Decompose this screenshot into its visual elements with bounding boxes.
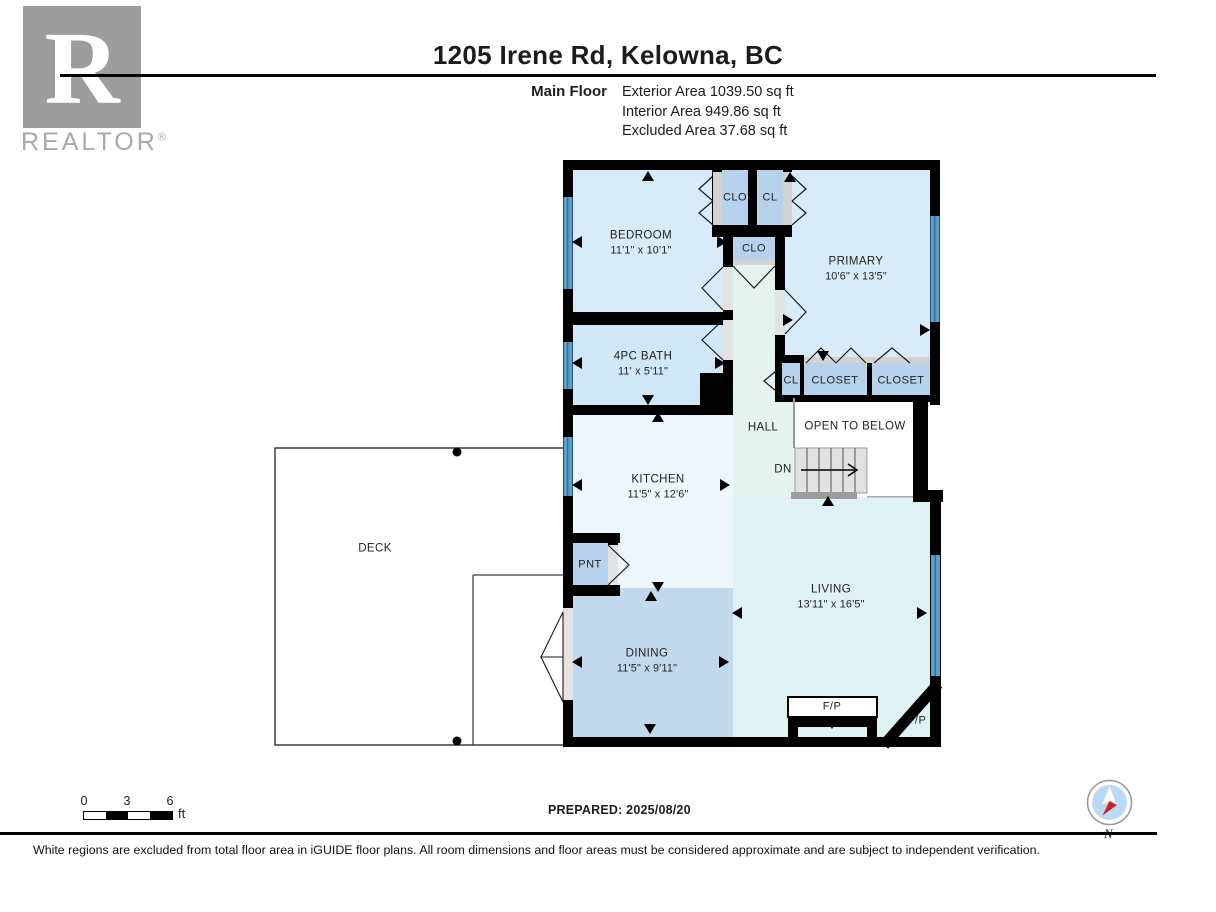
room-name: DINING <box>617 646 677 661</box>
room-label-bath: 4PC BATH 11' x 5'11" <box>614 349 673 378</box>
closet-label-clo-top: CLO <box>723 191 747 206</box>
room-label-hall: HALL <box>748 420 778 435</box>
room-label-deck: DECK <box>358 541 392 556</box>
closet-label-cl-top: CL <box>762 191 777 206</box>
deck-post-dot <box>453 737 462 746</box>
room-dims: 11'5" x 12'6" <box>627 487 688 501</box>
room-dims: 10'6" x 13'5" <box>825 269 887 283</box>
prepared-date: PREPARED: 2025/08/20 <box>548 803 691 817</box>
scale-tick-6: 6 <box>167 794 174 808</box>
room-label-primary: PRIMARY 10'6" x 13'5" <box>825 254 887 283</box>
scale-tick-0: 0 <box>81 794 88 808</box>
room-name: KITCHEN <box>627 472 688 487</box>
room-name: 4PC BATH <box>614 349 673 364</box>
footer-rule <box>0 832 1157 835</box>
closet-label-closet-a: CLOSET <box>811 374 858 389</box>
scale-unit-label: ft <box>178 806 185 821</box>
closet-label-pantry: PNT <box>578 558 602 573</box>
room-name: LIVING <box>797 582 864 597</box>
room-dims: 11' x 5'11" <box>614 364 673 378</box>
scale-tick-3: 3 <box>124 794 131 808</box>
closet-label-closet-b: CLOSET <box>877 374 924 389</box>
room-dims: 11'5" x 9'11" <box>617 661 677 675</box>
room-dims: 11'1" x 10'1" <box>610 243 672 257</box>
room-dims: 13'11" x 16'5" <box>797 597 864 611</box>
floor-plan-page: { "header": { "title": "1205 Irene Rd, K… <box>0 0 1216 912</box>
floor-plan-svg <box>0 0 1216 912</box>
room-name: PRIMARY <box>825 254 887 269</box>
closet-label-cl-primary: CL <box>783 374 798 389</box>
room-label-living: LIVING 13'11" x 16'5" <box>797 582 864 611</box>
room-label-kitchen: KITCHEN 11'5" x 12'6" <box>627 472 688 501</box>
fireplace-label-corner: F/P <box>908 714 927 729</box>
room-name: BEDROOM <box>610 228 672 243</box>
room-label-open-to-below: OPEN TO BELOW <box>804 419 905 434</box>
room-label-bedroom: BEDROOM 11'1" x 10'1" <box>610 228 672 257</box>
footer-disclaimer: White regions are excluded from total fl… <box>33 843 1040 857</box>
stairs-dn-label: DN <box>774 462 791 477</box>
fireplace-label-main: F/P <box>823 700 842 715</box>
deck-outline <box>275 448 570 746</box>
compass-icon <box>1086 779 1133 826</box>
deck-post-dot <box>453 448 462 457</box>
scale-bar-ticks: 0 3 6 <box>70 794 180 808</box>
closet-label-clo-hall: CLO <box>742 242 766 257</box>
room-label-dining: DINING 11'5" x 9'11" <box>617 646 677 675</box>
scale-bar <box>83 811 173 820</box>
